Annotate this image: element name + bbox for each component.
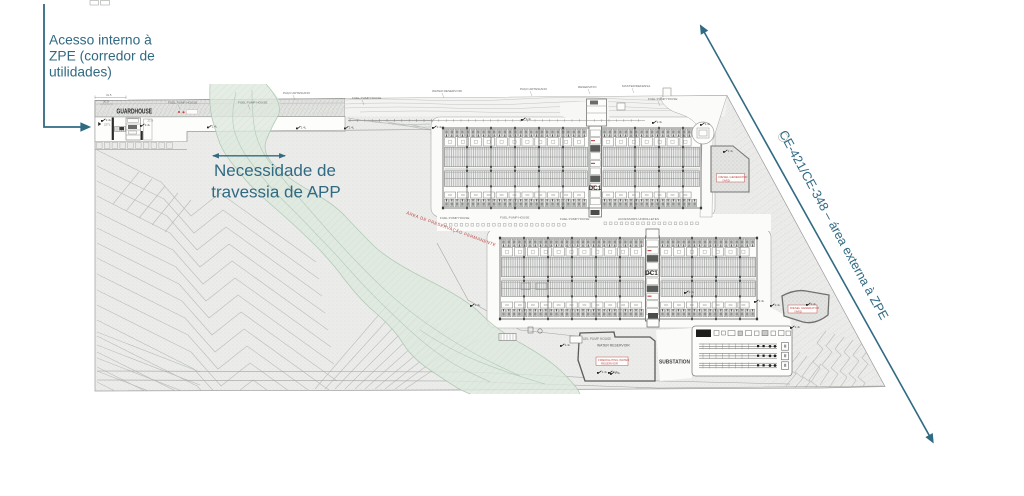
svg-text:DC1: DC1 [589,185,602,192]
svg-text:2.4L: 2.4L [728,149,734,153]
svg-text:2.4L: 2.4L [565,343,571,347]
svg-text:FUEL PUMP HOUSE: FUEL PUMP HOUSE [581,337,611,341]
svg-text:2.4L: 2.4L [437,125,443,129]
svg-text:FUEL PUMP HOUSE: FUEL PUMP HOUSE [500,216,529,220]
svg-text:FUEL PUMP HOUSE: FUEL PUMP HOUSE [440,216,469,220]
svg-text:WATER RESERVOIR: WATER RESERVOIR [432,89,463,93]
svg-text:22.B: 22.B [148,119,154,123]
svg-text:30.0: 30.0 [103,100,109,104]
svg-text:RESERVOIR: RESERVOIR [601,361,618,365]
svg-text:PAÇO ARTESIANO: PAÇO ARTESIANO [283,91,311,95]
svg-text:YARD: YARD [722,178,730,182]
svg-text:SUBSTATION: SUBSTATION [659,360,690,366]
svg-text:FUEL PUMP HOUSE: FUEL PUMP HOUSE [352,96,381,100]
svg-text:MASTER/DEFENSA: MASTER/DEFENSA [622,84,651,88]
svg-text:YARD: YARD [794,310,802,314]
svg-text:2.4L: 2.4L [705,122,711,126]
svg-text:2.4L: 2.4L [526,117,532,121]
svg-text:RESERVATO: RESERVATO [578,85,597,89]
svg-text:2.4L: 2.4L [106,118,112,122]
svg-text:WATER RESERVOIR: WATER RESERVOIR [597,344,630,348]
svg-text:travessia de APP: travessia de APP [211,183,340,202]
svg-text:2.4L: 2.4L [145,123,151,127]
svg-text:2.4L: 2.4L [301,126,307,130]
svg-text:2.4L: 2.4L [602,370,608,374]
svg-text:2.4L: 2.4L [475,303,481,307]
svg-text:2.4L: 2.4L [811,302,817,306]
svg-text:2.4L: 2.4L [775,303,781,307]
svg-text:2.4L: 2.4L [795,325,801,329]
svg-text:FUEL PUMP HOUSE: FUEL PUMP HOUSE [560,217,589,221]
svg-text:Necessidade de: Necessidade de [214,161,336,180]
svg-text:2.4L: 2.4L [349,126,355,130]
svg-text:FUEL PUMP HOUSE: FUEL PUMP HOUSE [238,101,267,105]
svg-text:22TL: 22TL [104,122,111,126]
svg-text:FUEL PUMP HOUSE: FUEL PUMP HOUSE [168,101,197,105]
svg-text:FUEL PUMP HOUSE: FUEL PUMP HOUSE [648,97,677,101]
svg-text:ACCESSORS UNROLLETES: ACCESSORS UNROLLETES [618,217,659,221]
svg-text:2.4L: 2.4L [689,290,695,294]
svg-text:31.5: 31.5 [106,93,112,97]
svg-text:2.4L: 2.4L [759,299,765,303]
svg-text:utilidades): utilidades) [49,65,112,80]
svg-text:ZPE (corredor de: ZPE (corredor de [49,49,155,64]
svg-text:2.4L: 2.4L [657,120,663,124]
svg-text:2.4L: 2.4L [212,125,218,129]
svg-text:DC1: DC1 [645,270,658,277]
svg-text:GUARDHOUSE: GUARDHOUSE [117,108,153,115]
svg-text:2.4L: 2.4L [613,370,619,374]
svg-text:PAÇO ARTESIANO: PAÇO ARTESIANO [520,87,548,91]
svg-text:Acesso interno à: Acesso interno à [49,33,152,48]
